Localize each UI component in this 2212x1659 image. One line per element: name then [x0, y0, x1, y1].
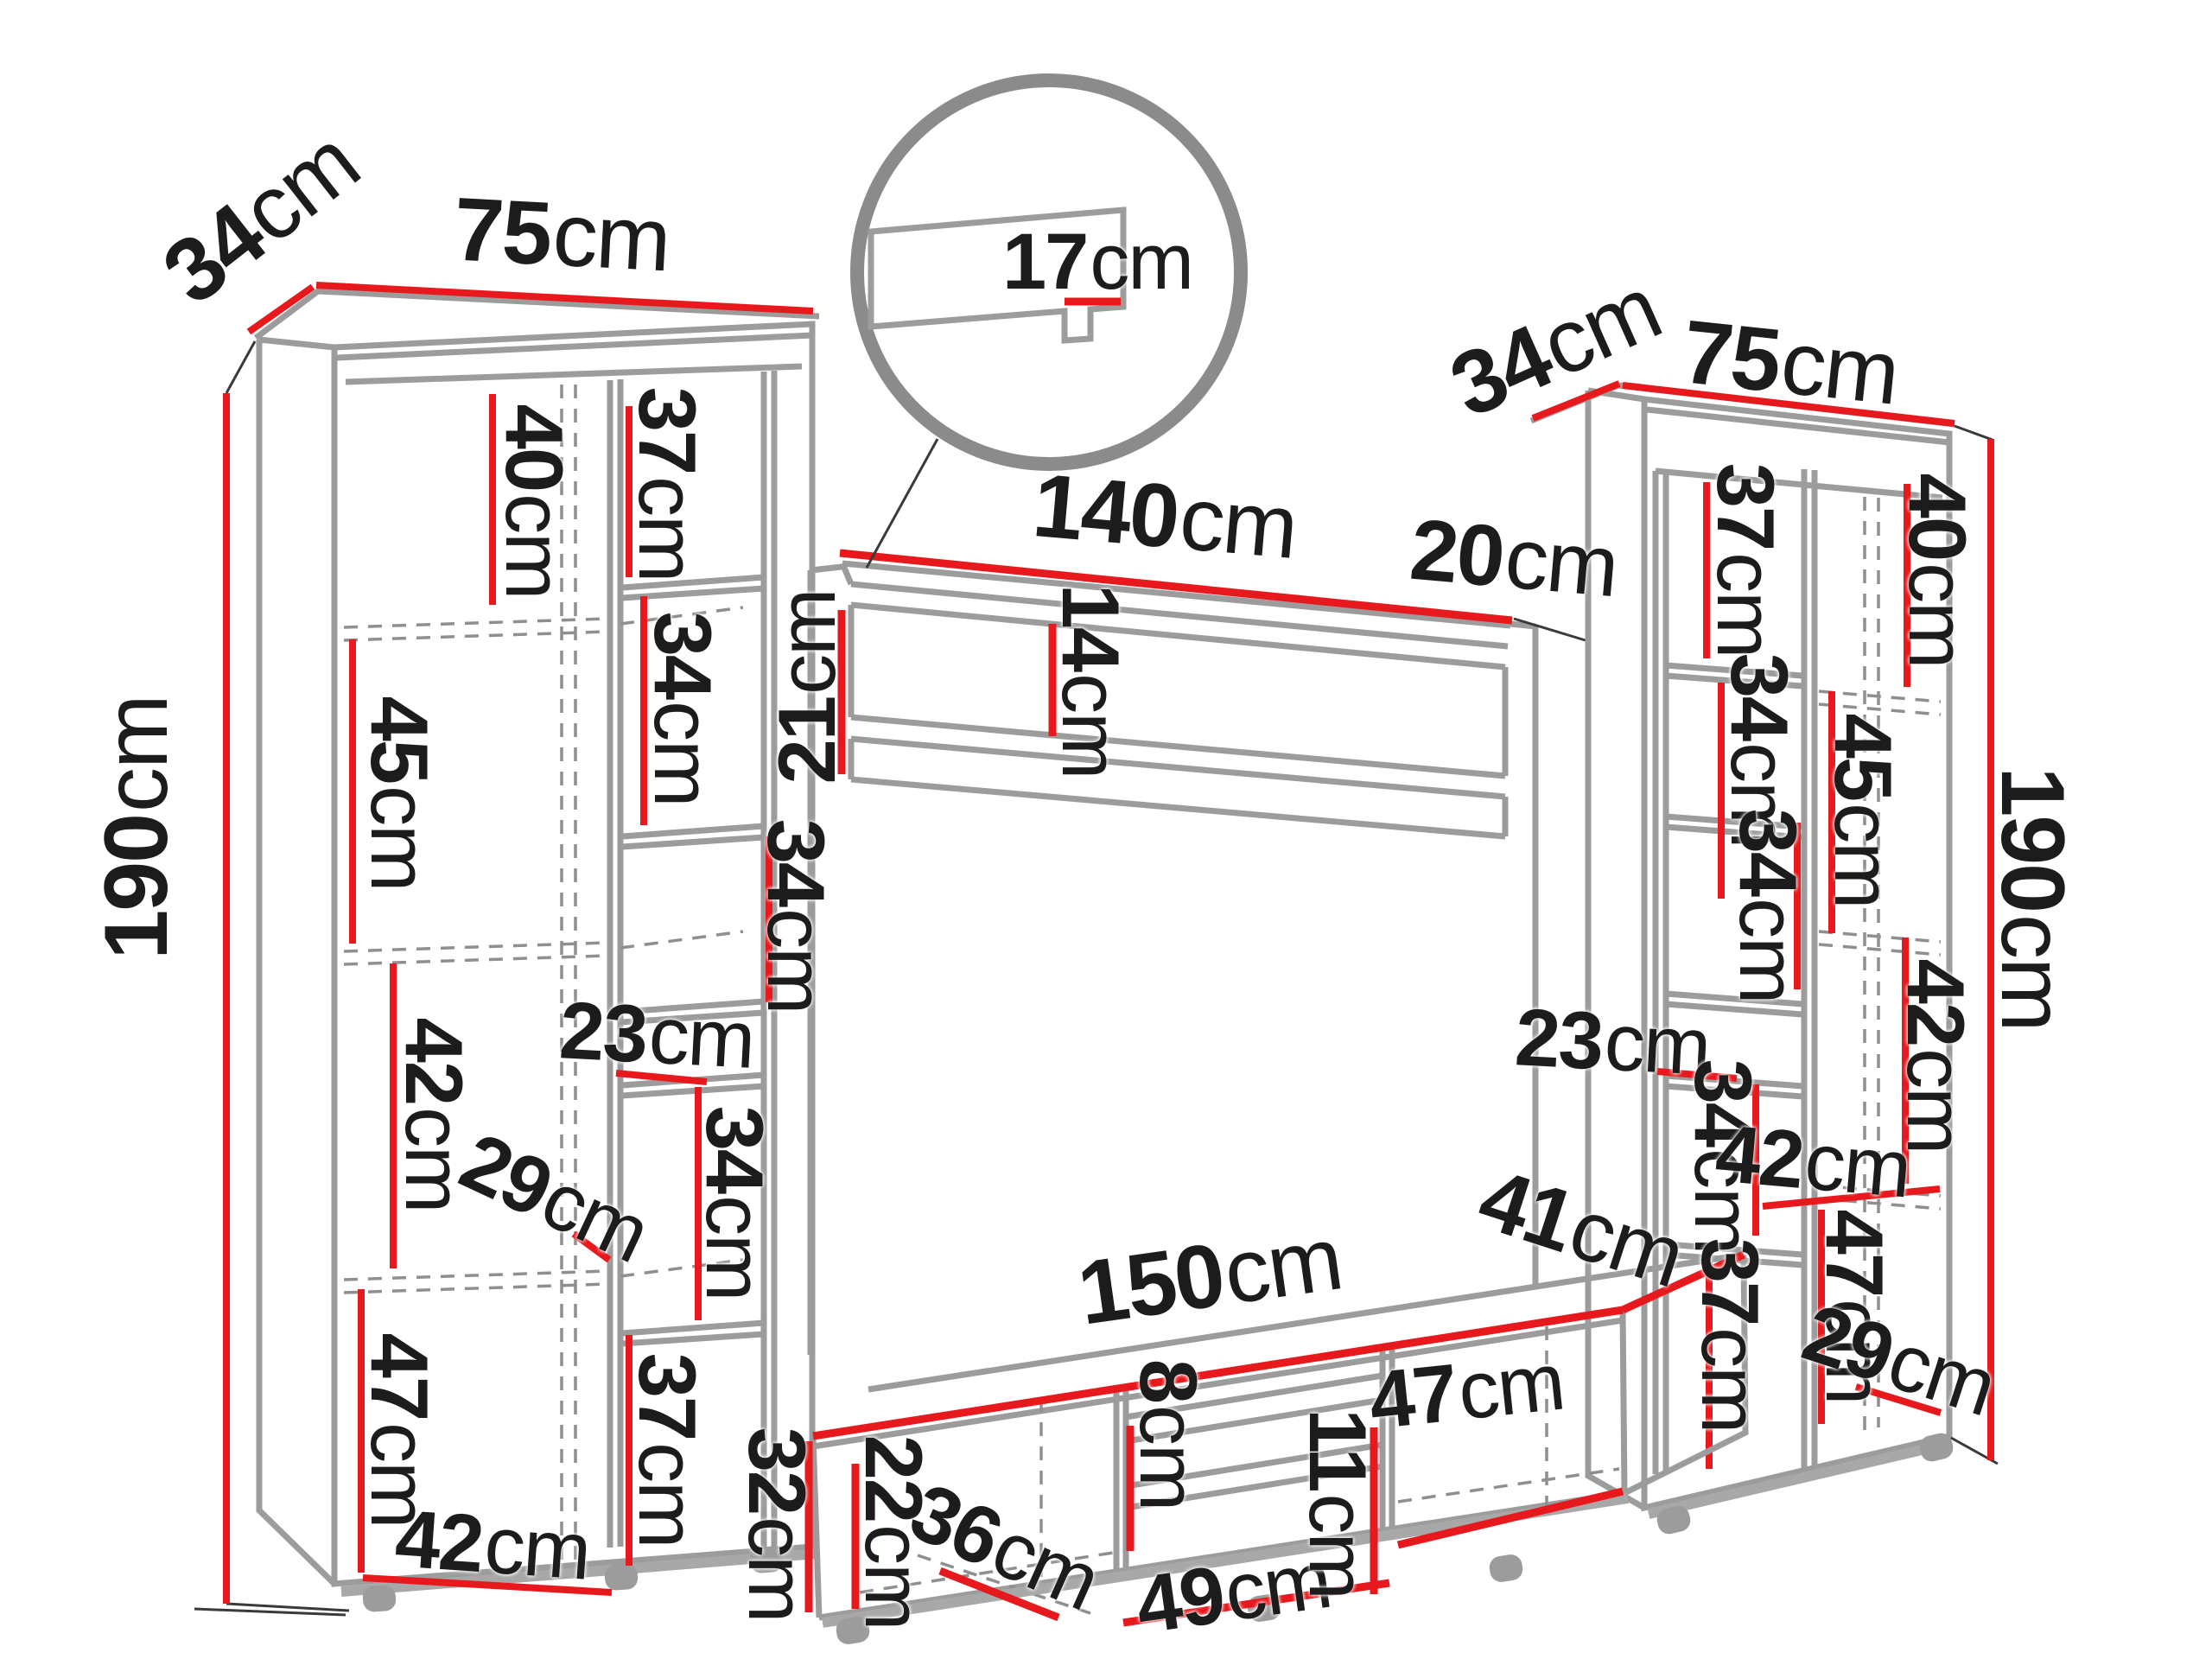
dim-left-niche-37-bottom: 37cm	[626, 1353, 708, 1548]
dim-right-niche-37-bottom: 37cm	[1689, 1238, 1770, 1433]
dim-left-niche-34-a: 34cm	[642, 612, 723, 806]
dim-right-edge-34: 34cm	[1727, 809, 1808, 1003]
dim-tv-door-47: 47cm	[1365, 1341, 1567, 1442]
dim-left-niche-23: 23cm	[557, 989, 755, 1081]
dim-shelf-length-140: 140cm	[1029, 461, 1300, 573]
right-cabinet-shadow	[1649, 1443, 1951, 1514]
dim-tv-niche-8: 8cm	[1128, 1359, 1209, 1510]
dim-left-edge-34: 34cm	[755, 819, 836, 1014]
dim-right-height: 190cm	[1987, 766, 2077, 1030]
dim-detail-17: 17cm	[1002, 222, 1192, 302]
dim-tv-niche-11: 11cm	[1297, 1408, 1378, 1599]
dim-right-shelf-45: 45cm	[1822, 714, 1904, 908]
dim-left-shelf-40: 40cm	[493, 404, 575, 599]
furniture-dimension-diagram: 34cm 75cm 190cm 40cm 45cm 42cm 47cm 42cm…	[0, 0, 2212, 1659]
detail-leader-line	[867, 439, 938, 568]
dim-right-niche-37-top: 37cm	[1705, 463, 1786, 658]
dim-tv-height-32: 32cm	[736, 1427, 817, 1622]
dim-left-niche-37-top: 37cm	[626, 387, 708, 582]
dim-right-shelf-40: 40cm	[1897, 474, 1978, 668]
dim-shelf-front-14: 14cm	[1050, 584, 1131, 779]
wall-shelf-structure	[842, 563, 1510, 836]
dim-shelf-depth-20: 20cm	[1407, 506, 1620, 610]
dim-shelf-height-21: 21cm	[766, 590, 848, 785]
dim-left-niche-34-b: 34cm	[694, 1106, 775, 1300]
shelf-depth-extension-line	[1514, 619, 1588, 641]
left-cabinet-extension-lines	[194, 341, 349, 1615]
dim-right-door-width-42: 42cm	[1713, 1112, 1913, 1210]
dim-left-door-width-42: 42cm	[393, 1497, 593, 1592]
dim-right-width: 75cm	[1679, 307, 1903, 418]
dim-left-width: 75cm	[452, 185, 671, 286]
dim-left-height: 190cm	[92, 696, 181, 959]
dim-left-shelf-45: 45cm	[359, 696, 440, 891]
